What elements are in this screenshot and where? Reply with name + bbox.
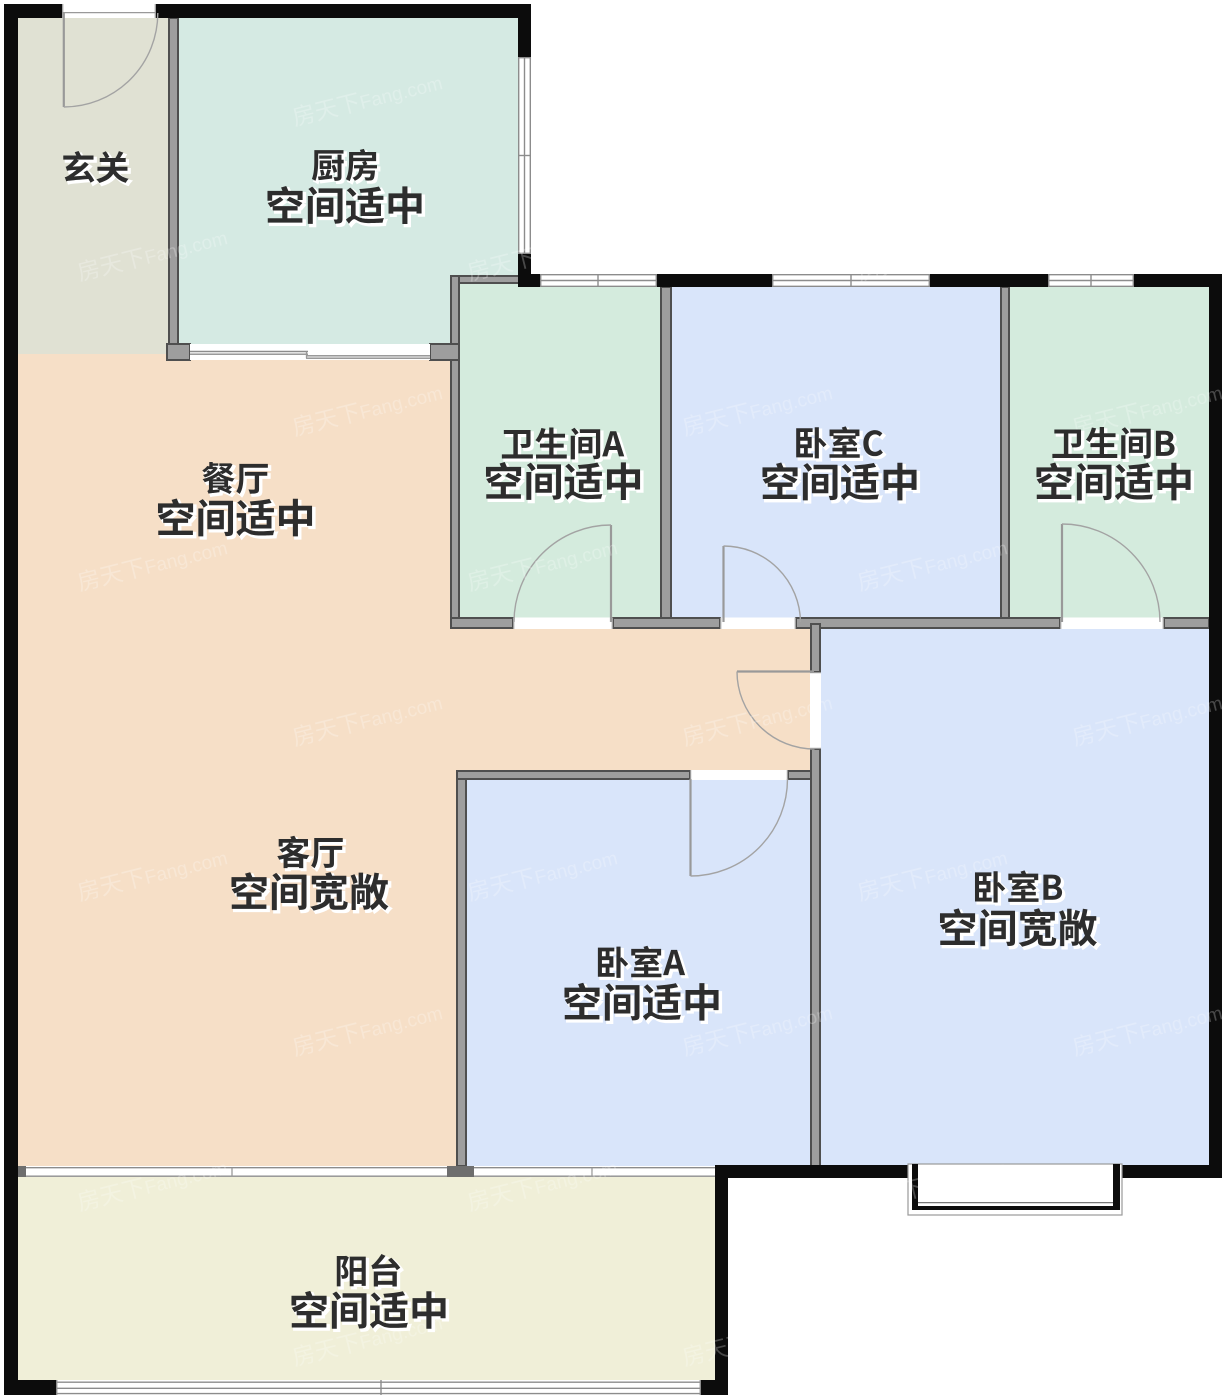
svg-text:Fang.com: Fang.com	[1138, 1313, 1225, 1354]
svg-text:Fang.com: Fang.com	[748, 73, 835, 114]
svg-text:Fang.com: Fang.com	[923, 228, 1010, 269]
svg-text:Fang.com: Fang.com	[1138, 73, 1225, 114]
svg-text:Fang.com: Fang.com	[748, 1313, 835, 1354]
svg-text:Fang.com: Fang.com	[533, 228, 620, 269]
